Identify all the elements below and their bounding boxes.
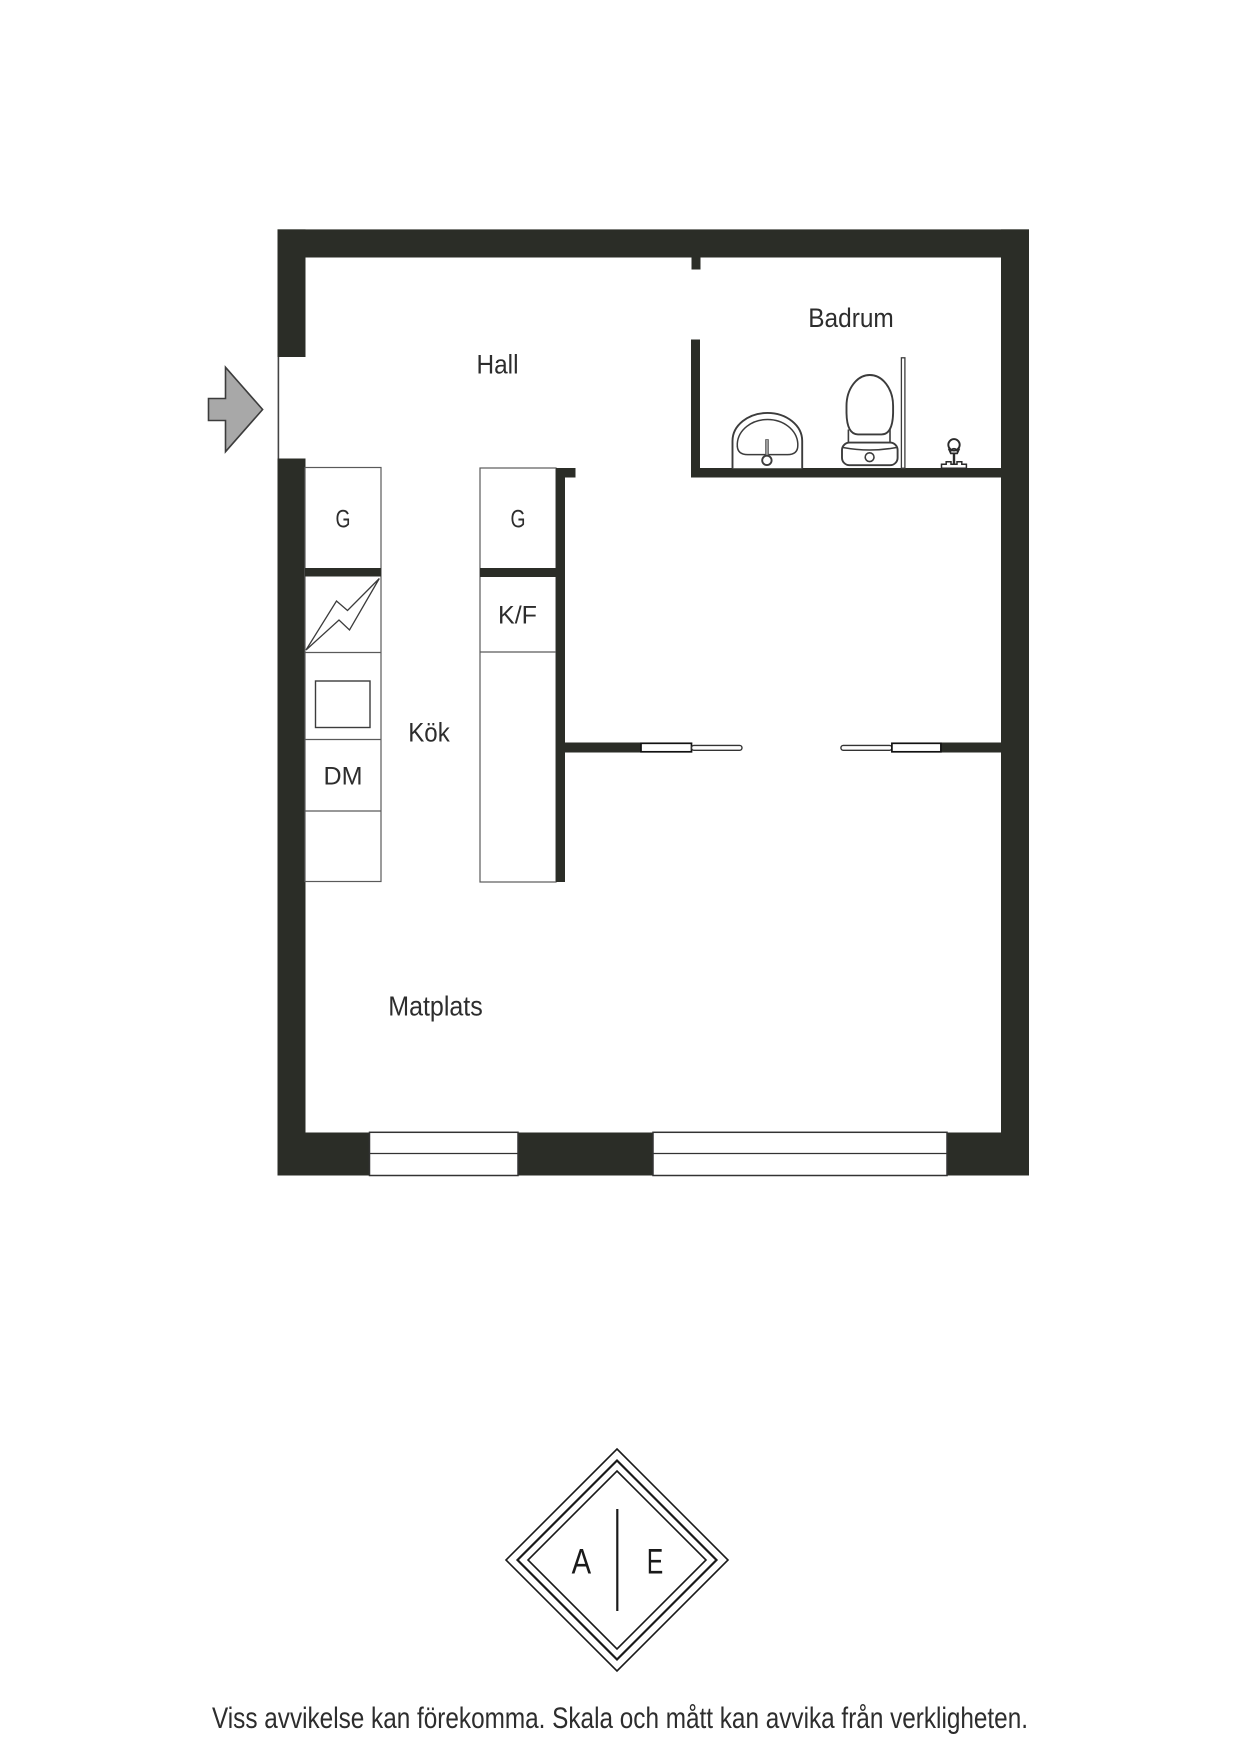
svg-text:K/F: K/F bbox=[498, 602, 537, 630]
svg-text:E: E bbox=[647, 1542, 664, 1581]
svg-text:Kök: Kök bbox=[408, 718, 450, 748]
svg-text:G: G bbox=[511, 506, 526, 534]
svg-text:G: G bbox=[336, 506, 351, 534]
svg-text:A: A bbox=[572, 1542, 592, 1581]
svg-text:Badrum: Badrum bbox=[808, 303, 894, 333]
svg-text:Viss avvikelse kan förekomma.: Viss avvikelse kan förekomma. Skala och … bbox=[212, 1702, 1028, 1735]
svg-text:DM: DM bbox=[324, 763, 363, 791]
svg-text:Matplats: Matplats bbox=[388, 991, 483, 1022]
svg-text:Hall: Hall bbox=[477, 350, 519, 380]
